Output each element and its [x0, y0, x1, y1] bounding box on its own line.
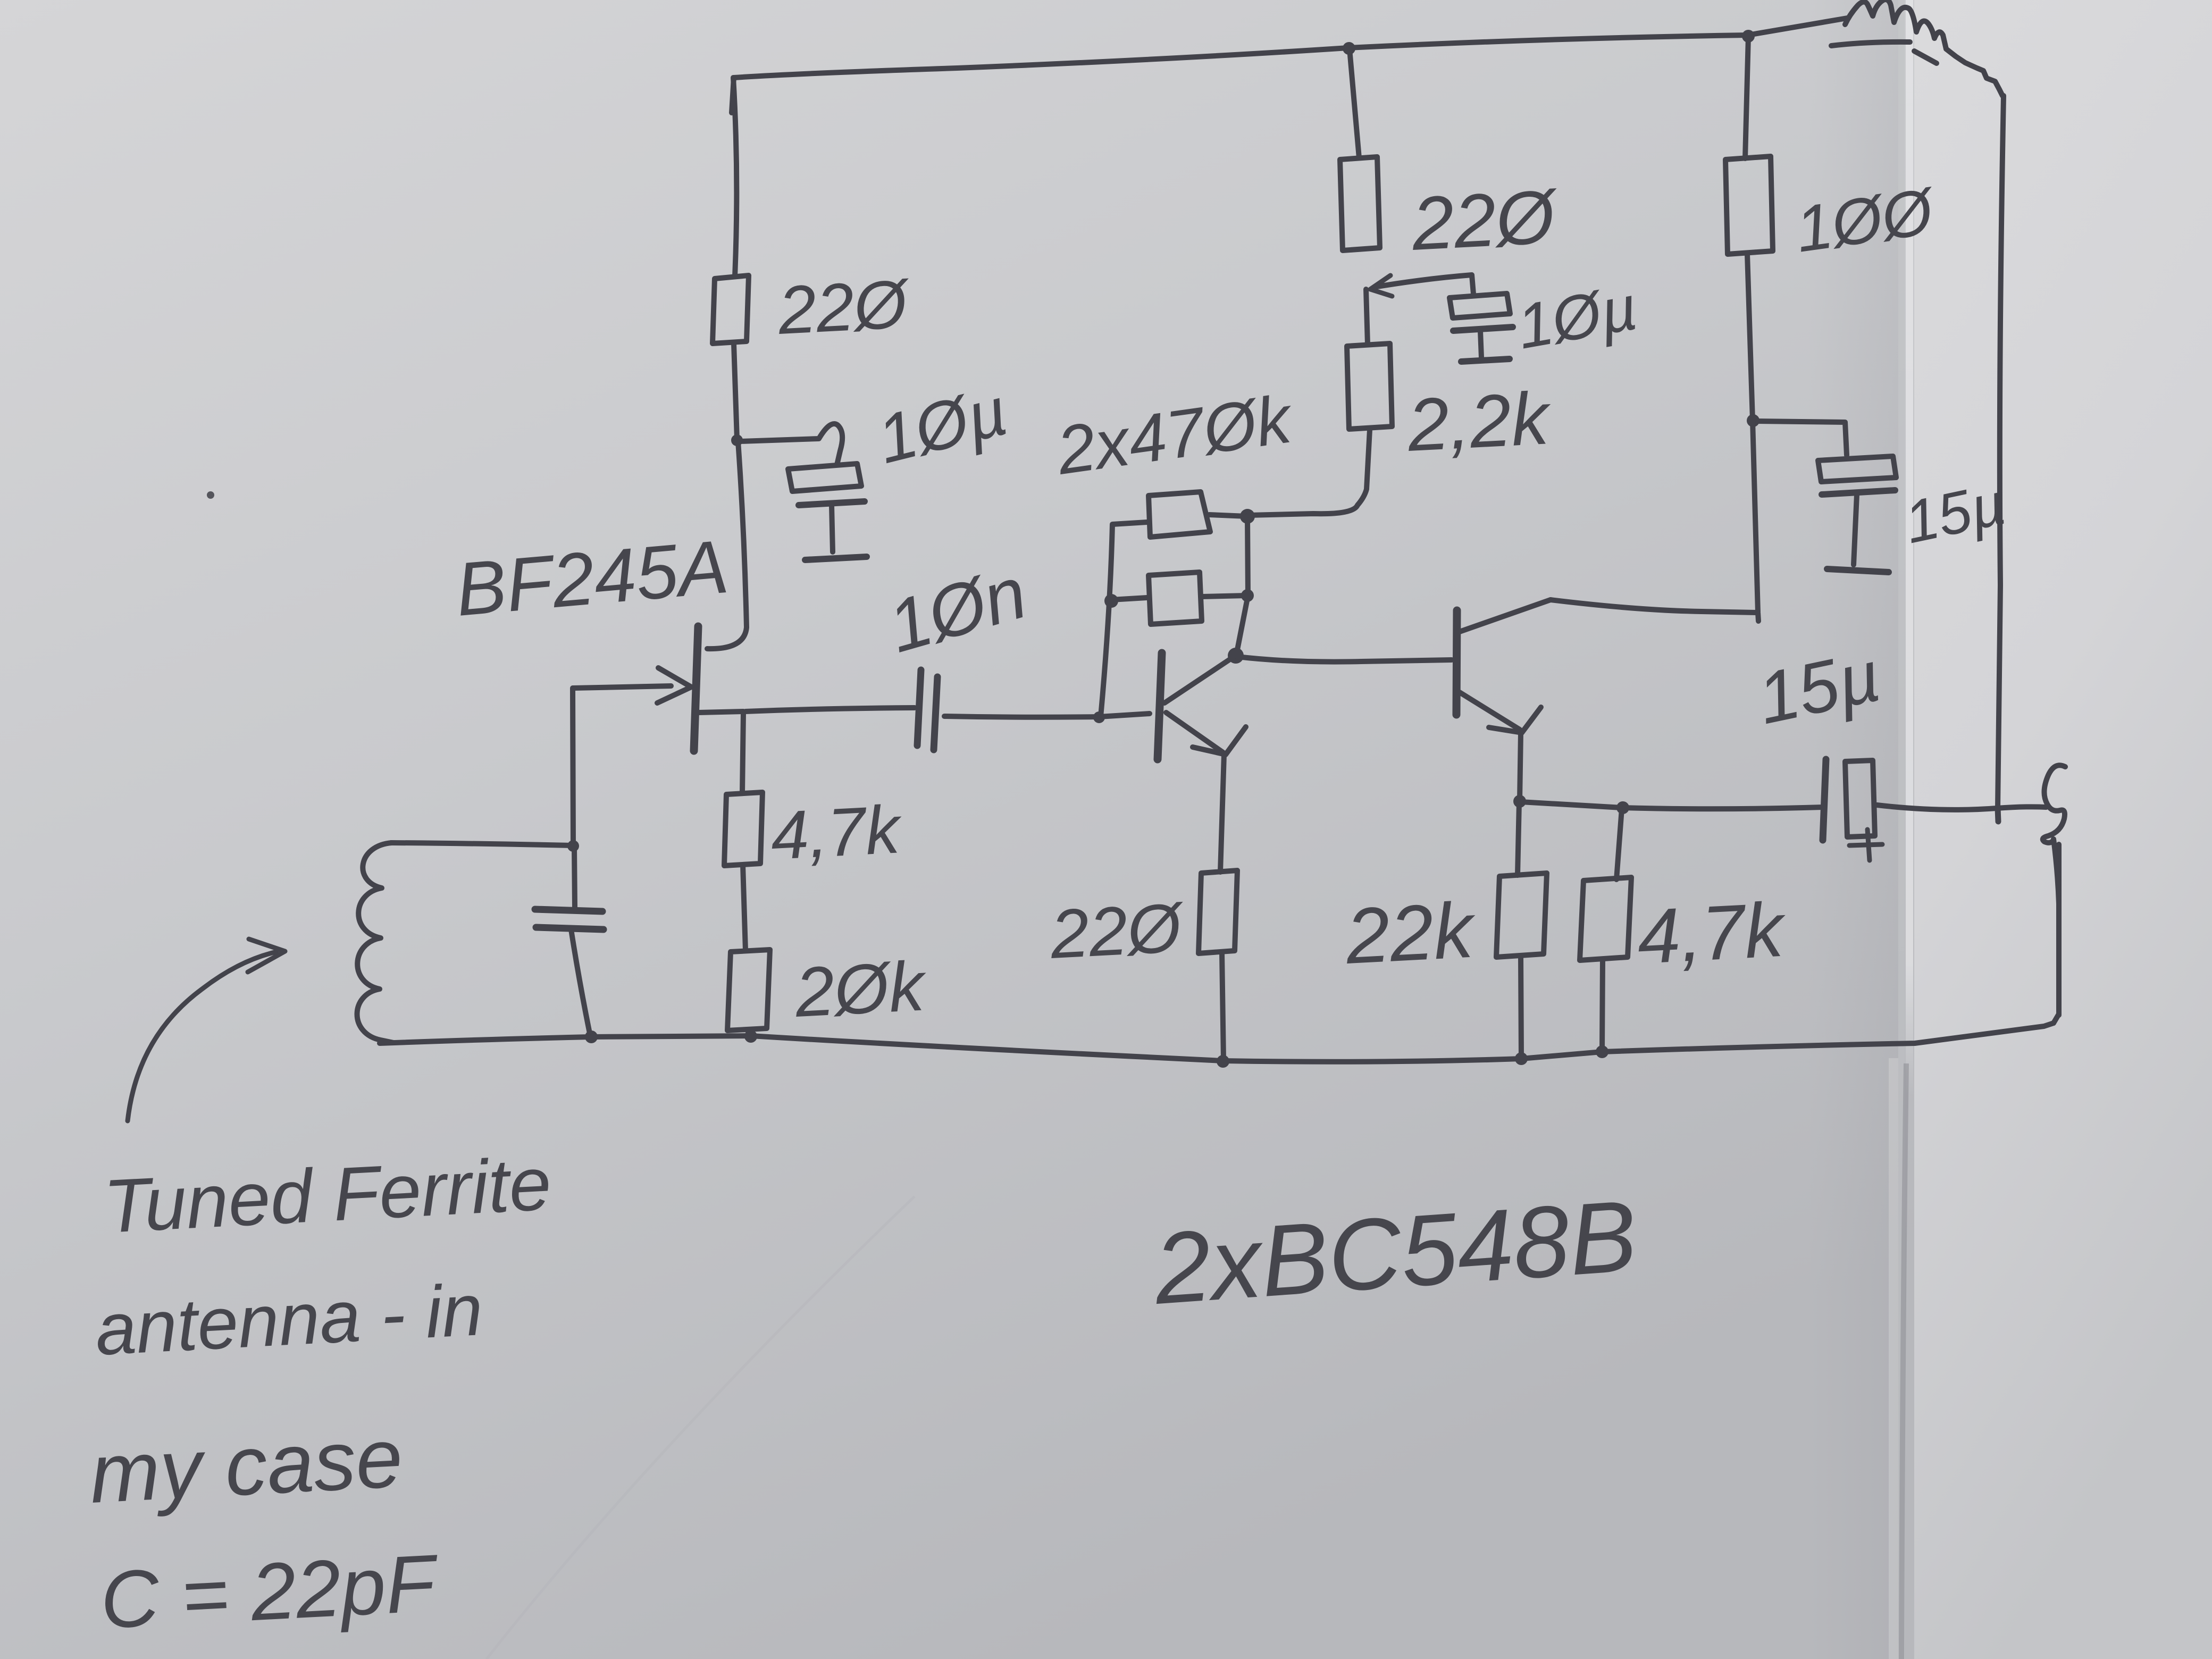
svg-text:C = 22pF: C = 22pF: [98, 1538, 441, 1646]
svg-text:22k: 22k: [1343, 886, 1479, 981]
svg-text:22Ø: 22Ø: [1048, 889, 1187, 973]
svg-text:22Ø: 22Ø: [776, 266, 912, 349]
svg-text:4,7k: 4,7k: [1635, 886, 1789, 979]
svg-text:22Ø: 22Ø: [1409, 174, 1561, 266]
svg-text:4,7k: 4,7k: [769, 791, 904, 874]
svg-text:2Øk: 2Øk: [793, 946, 929, 1032]
svg-text:my case: my case: [88, 1411, 405, 1521]
svg-text:2,2k: 2,2k: [1405, 376, 1553, 467]
